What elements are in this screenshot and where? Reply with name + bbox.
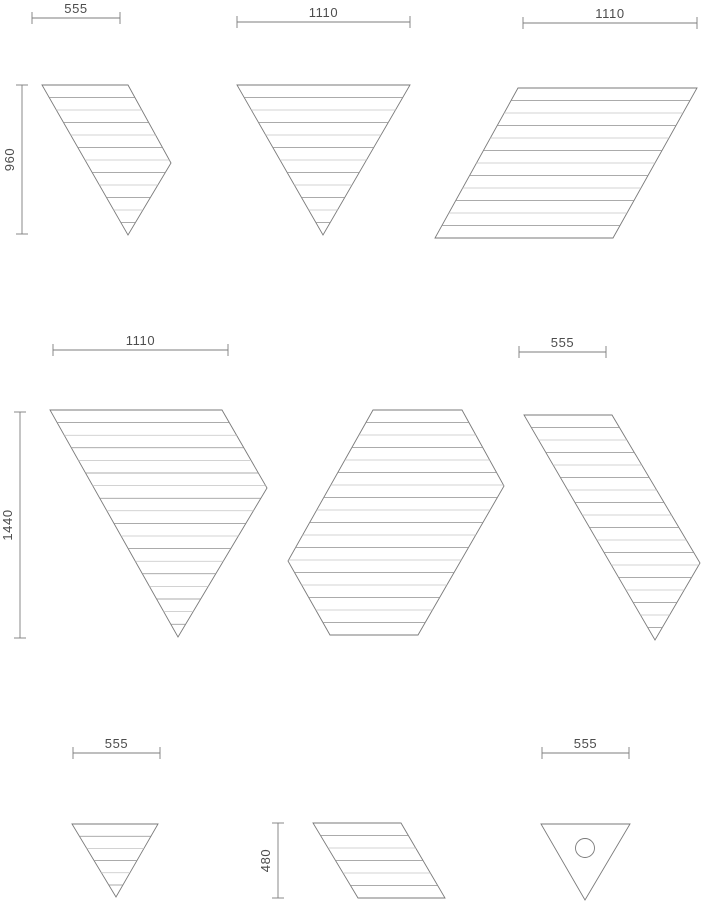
dim-mid-left-width-label: 1110: [126, 333, 155, 348]
panel-dimension-drawing-sheet: 5551110111096011105551440555480555: [0, 0, 706, 905]
dim-bottom-center-height-label: 480: [258, 849, 273, 873]
dim-mid-left-height-label: 1440: [0, 509, 15, 540]
panel-bottom-right-triangle-with-hole-outline: [541, 824, 630, 900]
dim-top-left-width: 555: [32, 1, 120, 24]
dim-bottom-left-width-label: 555: [105, 736, 129, 751]
panel-mid-center-hexagon: [286, 410, 506, 635]
dim-mid-right-width-label: 555: [551, 335, 575, 350]
dim-top-left-height-label: 960: [2, 148, 17, 172]
dim-bottom-center-height: 480: [258, 823, 284, 898]
panel-mid-right-rhomboid-triangle: [522, 415, 702, 640]
technical-drawing-svg: 5551110111096011105551440555480555: [0, 0, 706, 905]
panel-top-right-parallelogram: [433, 88, 699, 238]
dim-top-center-width: 1110: [237, 5, 410, 28]
panel-top-left-rhomboid-triangle: [40, 85, 173, 235]
panel-bottom-center-parallelogram: [311, 823, 447, 898]
dim-mid-left-height: 1440: [0, 412, 26, 638]
panel-mid-left-rhomboid-triangle: [48, 410, 269, 637]
dim-top-center-width-label: 1110: [309, 5, 338, 20]
dim-bottom-right-width: 555: [542, 736, 629, 759]
dim-mid-right-width: 555: [519, 335, 606, 358]
dim-top-right-width: 1110: [523, 6, 697, 29]
panel-top-center-triangle: [235, 85, 412, 235]
dim-top-right-width-label: 1110: [595, 6, 624, 21]
dim-top-left-height: 960: [2, 85, 28, 234]
dim-top-left-width-label: 555: [64, 1, 88, 16]
dim-mid-left-width: 1110: [53, 333, 228, 356]
dim-bottom-right-width-label: 555: [574, 736, 598, 751]
panel-bottom-left-triangle: [70, 824, 160, 897]
panel-bottom-right-triangle-with-hole: [541, 824, 630, 900]
dim-bottom-left-width: 555: [73, 736, 160, 759]
